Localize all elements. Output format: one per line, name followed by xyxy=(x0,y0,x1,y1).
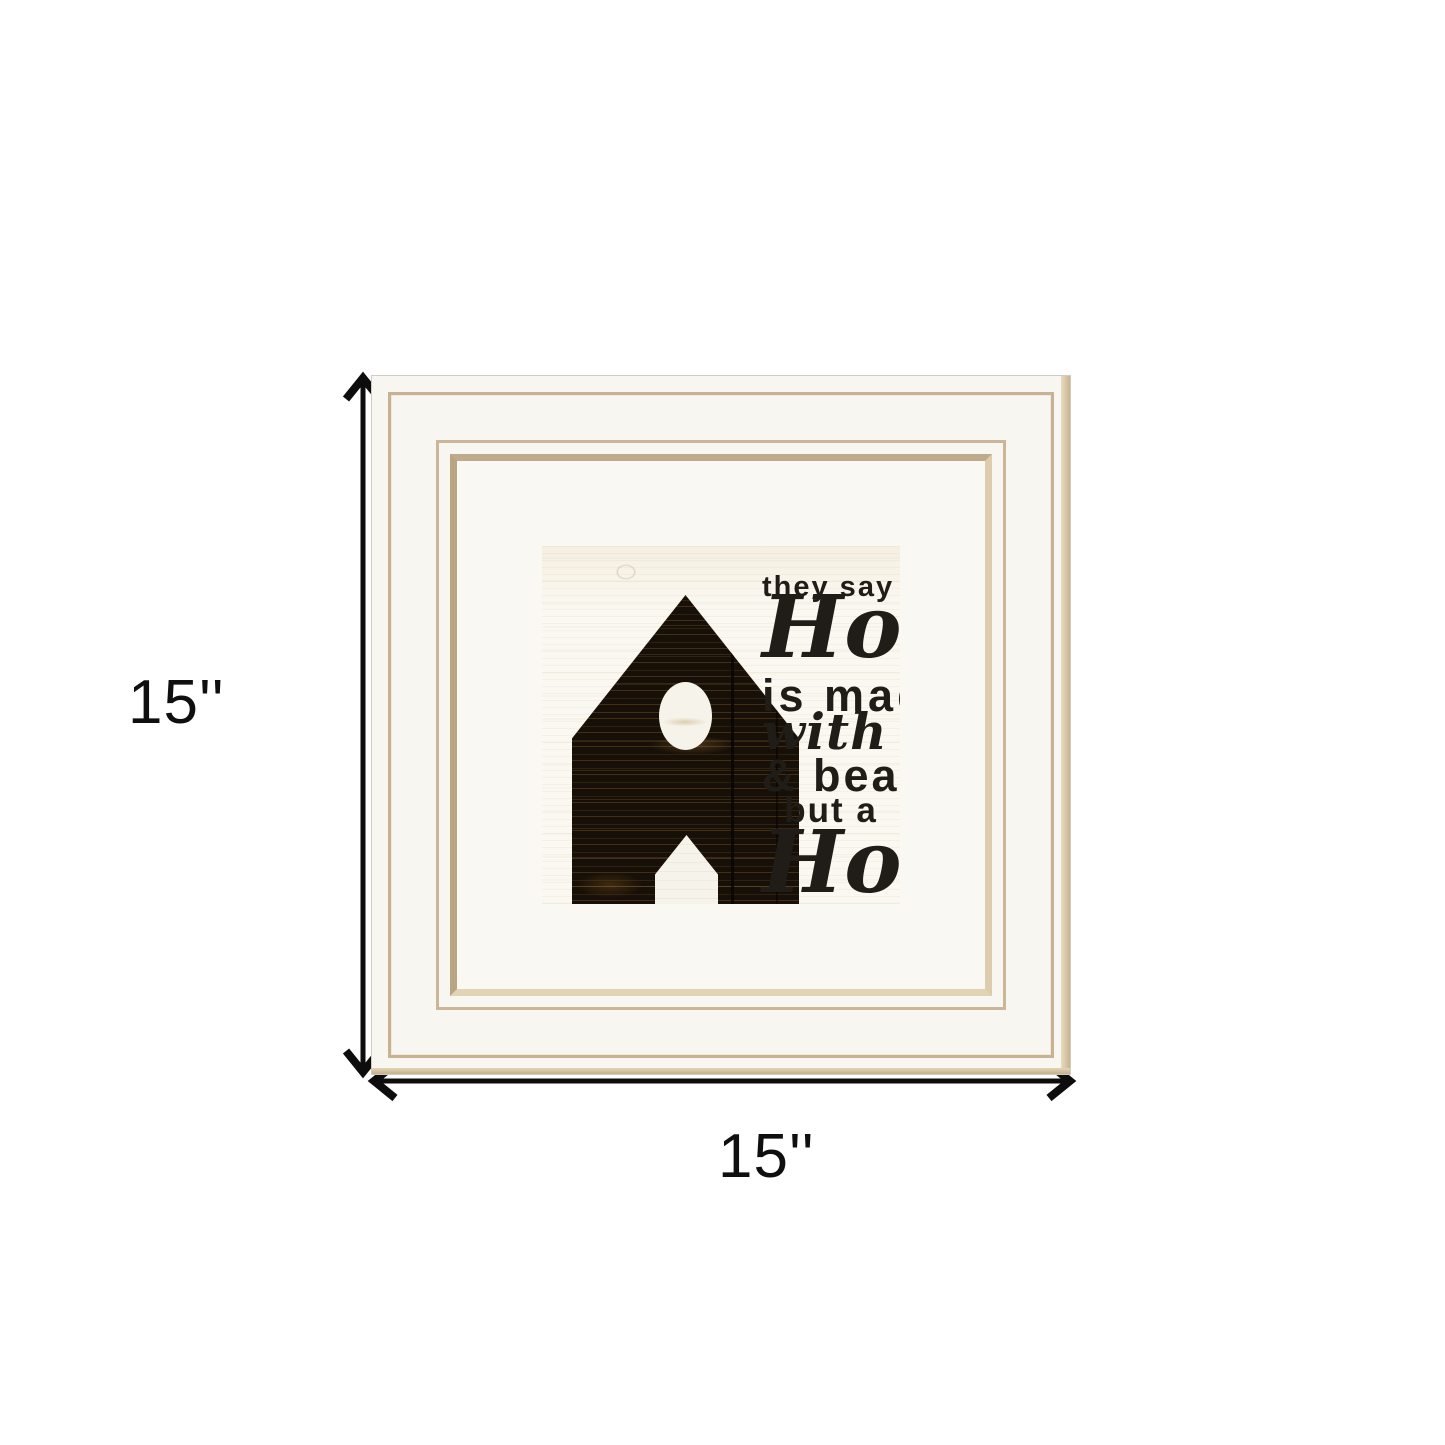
frame-right-edge-shadow xyxy=(1061,376,1070,1074)
quote-line-home: Home xyxy=(762,820,900,904)
artwork-print: they say a House is made with walls & be… xyxy=(542,546,900,904)
frame-bottom-edge-shadow xyxy=(372,1068,1070,1074)
height-dimension-label: 15'' xyxy=(128,672,225,734)
quote-line-is-made-2: is made xyxy=(762,903,900,904)
width-dimension-label: 15'' xyxy=(718,1126,815,1188)
frame-mat: they say a House is made with walls & be… xyxy=(450,454,992,996)
quote-text-block: they say a House is made with walls & be… xyxy=(542,546,900,904)
product-dimension-diagram: 15'' 15'' they say a House is made with … xyxy=(0,0,1445,1445)
picture-frame: they say a House is made with walls & be… xyxy=(371,375,1071,1075)
quote-line-house: House xyxy=(762,585,900,671)
